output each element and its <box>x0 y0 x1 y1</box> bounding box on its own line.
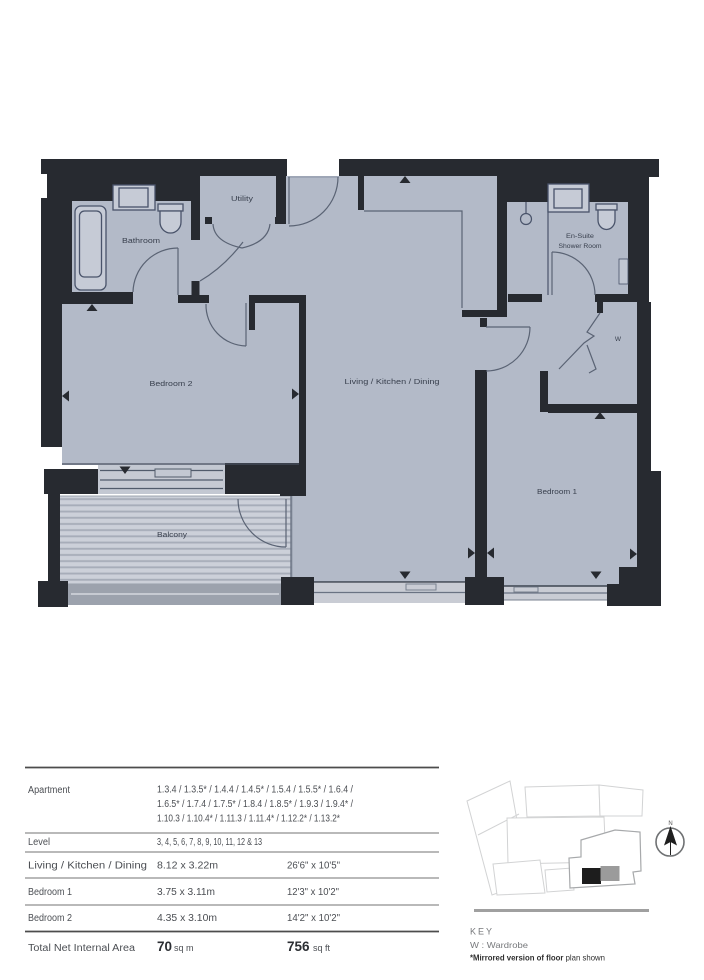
svg-text:En-Suite: En-Suite <box>566 233 594 240</box>
svg-text:sq ft: sq ft <box>313 943 331 953</box>
svg-text:Utility: Utility <box>231 196 254 203</box>
svg-text:N: N <box>668 821 672 827</box>
svg-text:W : Wardrobe: W : Wardrobe <box>470 940 528 950</box>
svg-text:*Mirrored version of floor pla: *Mirrored version of floor plan shown <box>470 953 605 963</box>
svg-text:Shower Room: Shower Room <box>559 243 603 250</box>
svg-text:1.3.4 / 1.3.5* / 1.4.4 / 1.4.5: 1.3.4 / 1.3.5* / 1.4.4 / 1.4.5* / 1.5.4 … <box>157 785 353 796</box>
svg-text:3, 4, 5, 6, 7, 8, 9, 10, 11, 1: 3, 4, 5, 6, 7, 8, 9, 10, 11, 12 & 13 <box>157 837 262 848</box>
svg-text:8.12 x 3.22m: 8.12 x 3.22m <box>157 861 218 872</box>
svg-text:4.35 x 3.10m: 4.35 x 3.10m <box>157 913 217 924</box>
svg-text:Apartment: Apartment <box>28 785 70 796</box>
svg-text:sq m: sq m <box>174 943 194 953</box>
svg-text:12'3" x 10'2": 12'3" x 10'2" <box>287 887 339 898</box>
svg-text:756: 756 <box>287 939 310 954</box>
svg-text:Level: Level <box>28 837 50 848</box>
svg-text:1.10.3 / 1.10.4* / 1.11.3 / 1.: 1.10.3 / 1.10.4* / 1.11.3 / 1.11.4* / 1.… <box>157 814 340 825</box>
svg-text:26'6" x 10'5": 26'6" x 10'5" <box>287 861 340 872</box>
svg-text:Bedroom 2: Bedroom 2 <box>150 381 193 388</box>
svg-text:Bedroom 2: Bedroom 2 <box>28 913 72 924</box>
svg-text:Living / Kitchen / Dining: Living / Kitchen / Dining <box>28 861 147 872</box>
svg-text:14'2" x 10'2": 14'2" x 10'2" <box>287 913 340 924</box>
svg-text:Bedroom 1: Bedroom 1 <box>537 489 577 496</box>
svg-text:1.6.5* / 1.7.4 / 1.7.5* / 1.8.: 1.6.5* / 1.7.4 / 1.7.5* / 1.8.4 / 1.8.5*… <box>157 799 353 810</box>
svg-text:Bathroom: Bathroom <box>122 238 160 245</box>
svg-text:Total Net Internal Area: Total Net Internal Area <box>28 943 135 954</box>
svg-text:3.75 x 3.11m: 3.75 x 3.11m <box>157 887 215 898</box>
svg-text:70: 70 <box>157 939 172 954</box>
svg-text:W: W <box>615 336 622 343</box>
svg-text:KEY: KEY <box>470 927 494 937</box>
svg-text:Balcony: Balcony <box>157 532 188 539</box>
svg-text:Bedroom 1: Bedroom 1 <box>28 887 72 898</box>
svg-text:Living / Kitchen / Dining: Living / Kitchen / Dining <box>345 379 440 386</box>
